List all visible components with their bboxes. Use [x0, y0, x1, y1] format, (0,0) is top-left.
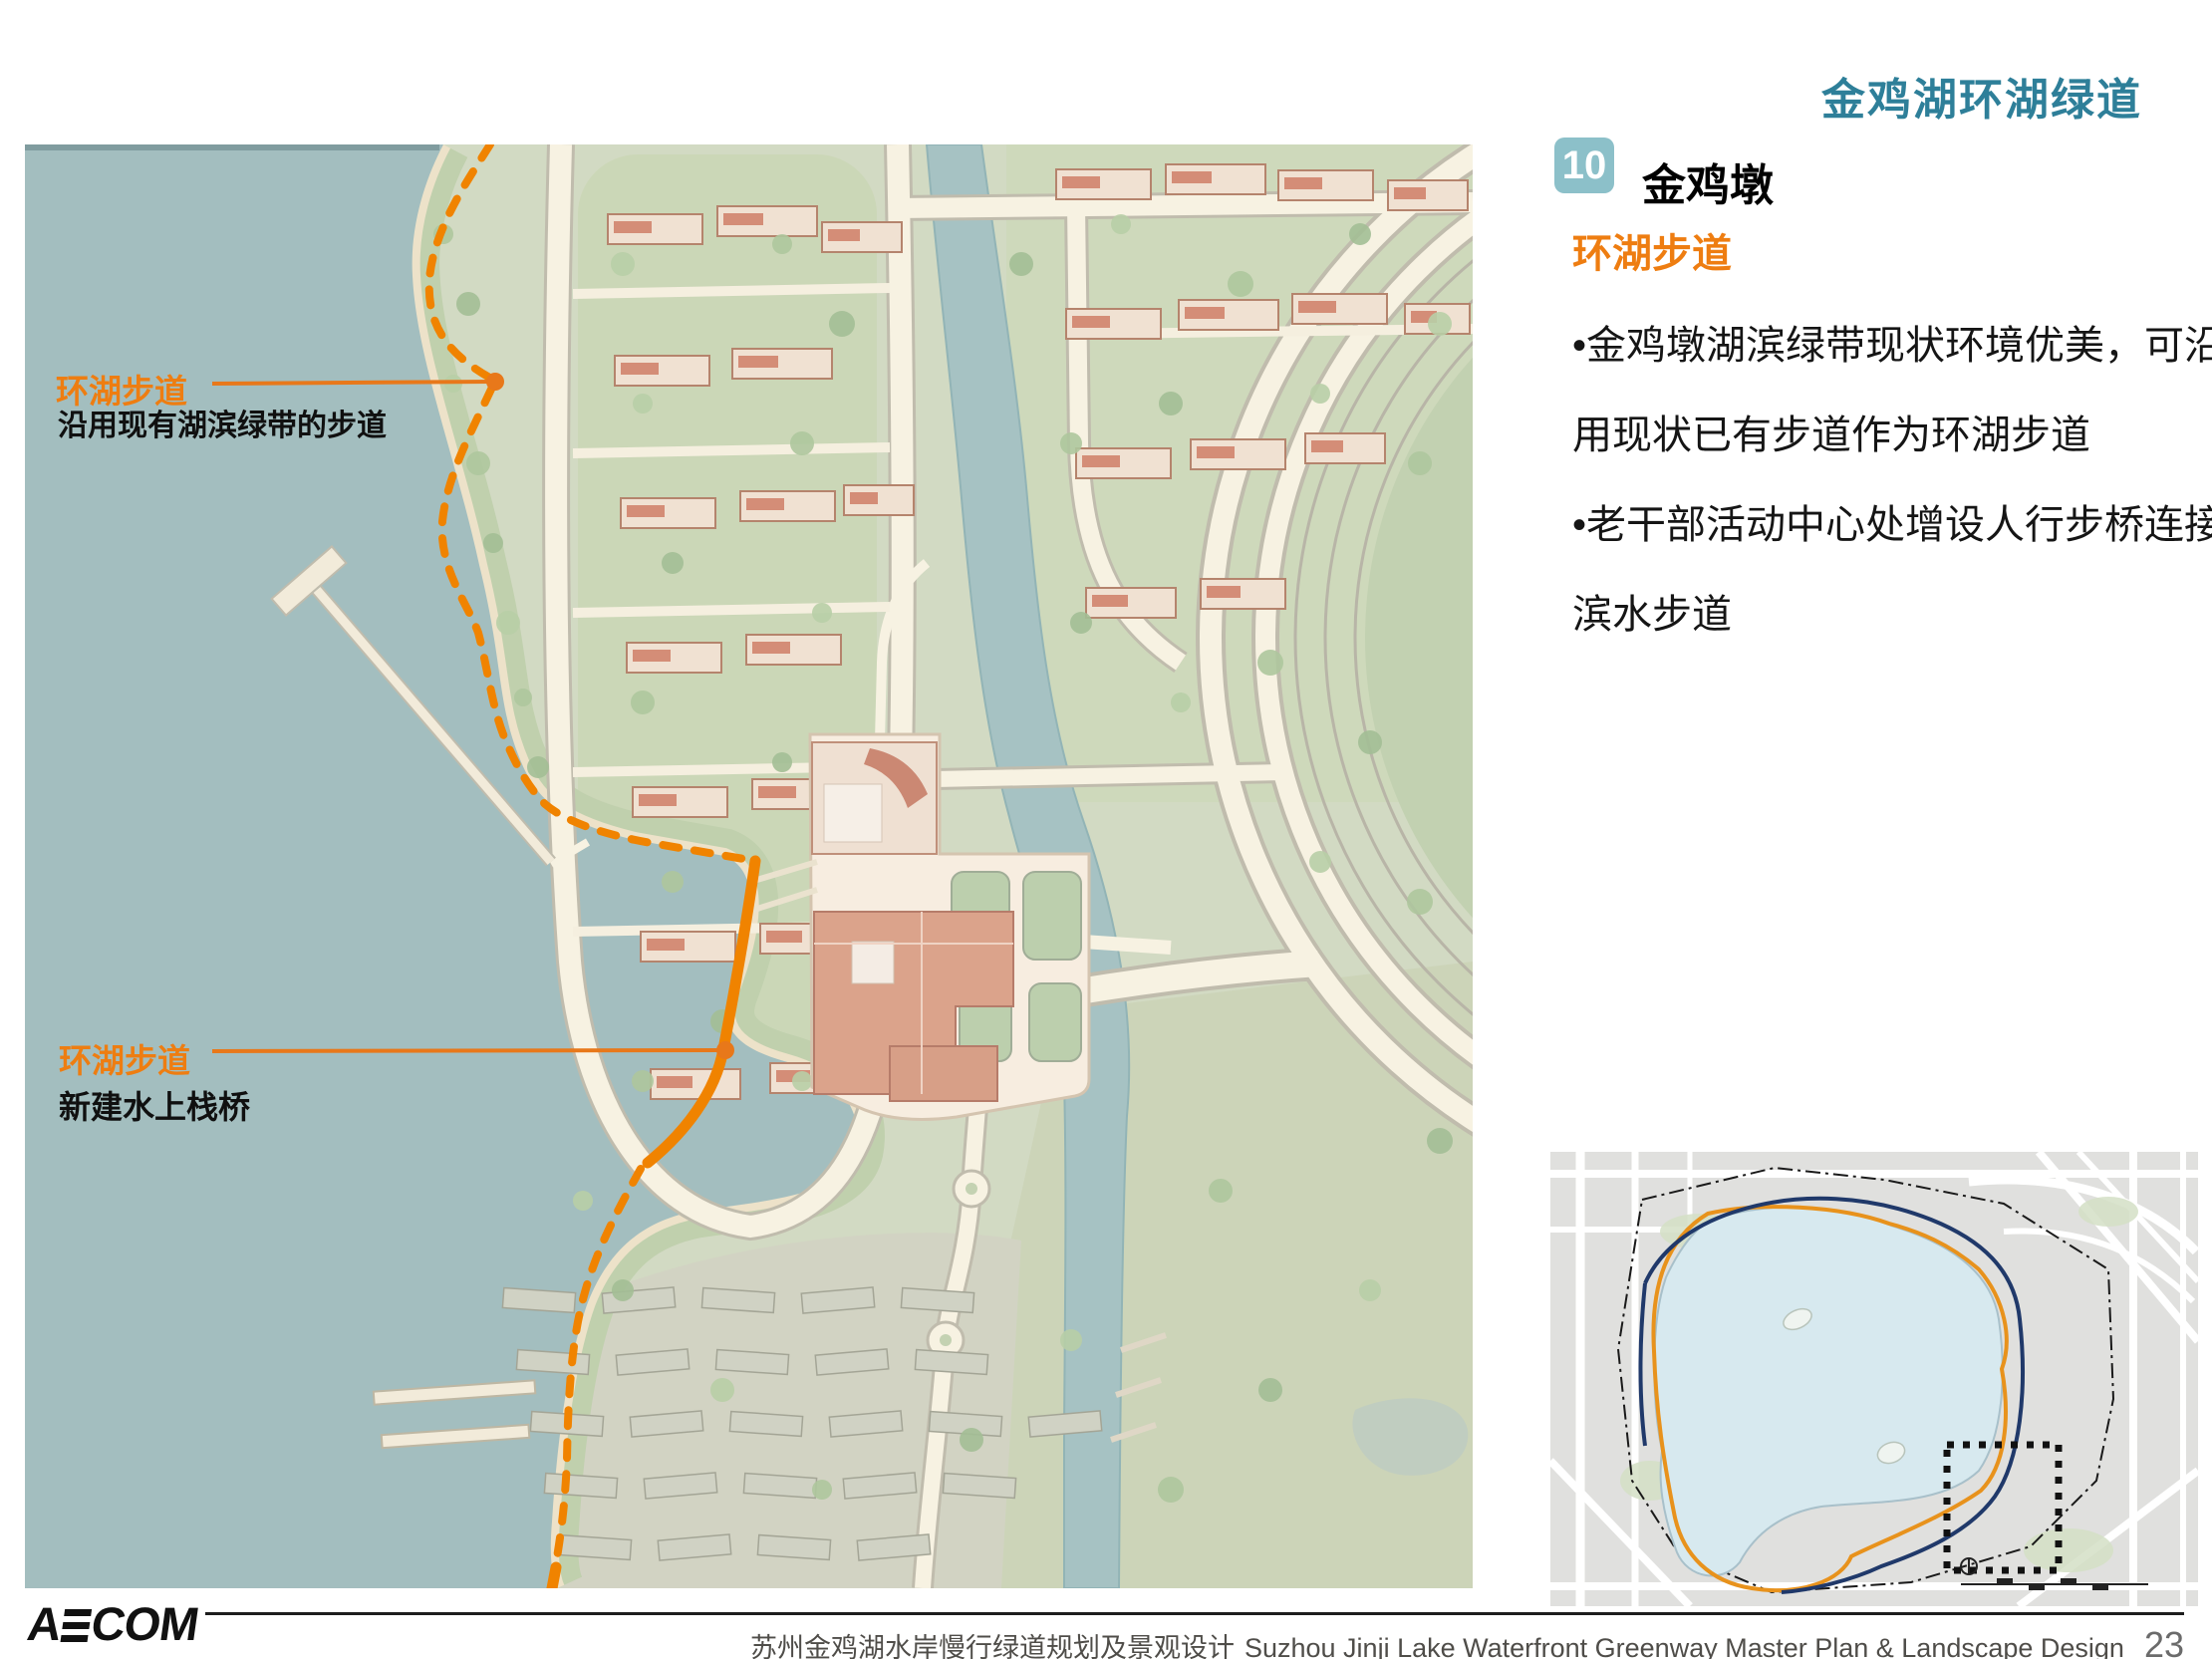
section-name: 金鸡墩 — [1642, 149, 1774, 213]
main-map-figure: 环湖步道 沿用现有湖滨绿带的步道 环湖步道 新建水上栈桥 — [25, 144, 1473, 1588]
overview-minimap-image — [1550, 1152, 2198, 1606]
aecom-e-bars-icon — [61, 1609, 93, 1642]
leader-dot-2 — [716, 1041, 734, 1059]
page-number: 23 — [2144, 1624, 2184, 1659]
annotation-2-label: 环湖步道 — [59, 1034, 190, 1082]
aecom-logo: ACOM — [25, 1606, 200, 1643]
annotation-2-sublabel: 新建水上栈桥 — [59, 1082, 250, 1128]
map-fade-veil — [25, 144, 1473, 1588]
aecom-letter: O — [122, 1606, 162, 1643]
section-body: •金鸡墩湖滨绿带现状环境优美，可沿 用现状已有步道作为环湖步道 •老干部活动中心… — [1572, 301, 2212, 660]
bullet-line: •金鸡墩湖滨绿带现状环境优美，可沿 — [1572, 301, 2212, 391]
aecom-letter: C — [89, 1606, 127, 1643]
bullet-line: 用现状已有步道作为环湖步道 — [1572, 391, 2212, 480]
bullet-line: 滨水步道 — [1572, 570, 2212, 660]
project-title-zh: 苏州金鸡湖水岸慢行绿道规划及景观设计 — [750, 1626, 1235, 1659]
project-title-en: Suzhou Jinji Lake Waterfront Greenway Ma… — [1244, 1633, 2124, 1659]
aecom-letter: M — [157, 1606, 200, 1643]
main-map-image — [25, 144, 1473, 1588]
footer-divider — [205, 1612, 2184, 1615]
bullet-line: •老干部活动中心处增设人行步桥连接 — [1572, 480, 2212, 570]
section-number-badge: 10 — [1554, 138, 1614, 193]
slide-page: 金鸡湖环湖绿道 — [0, 0, 2212, 1659]
section-subheading: 环湖步道 — [1572, 221, 1732, 279]
aecom-letter: A — [25, 1606, 63, 1643]
overview-minimap — [1550, 1152, 2198, 1606]
leader-dot-1 — [486, 373, 504, 391]
annotation-1-sublabel: 沿用现有湖滨绿带的步道 — [58, 401, 387, 444]
page-title: 金鸡湖环湖绿道 — [1821, 64, 2142, 128]
footer-text: 苏州金鸡湖水岸慢行绿道规划及景观设计 Suzhou Jinji Lake Wat… — [750, 1624, 2184, 1659]
route-south-solid — [552, 1567, 556, 1588]
